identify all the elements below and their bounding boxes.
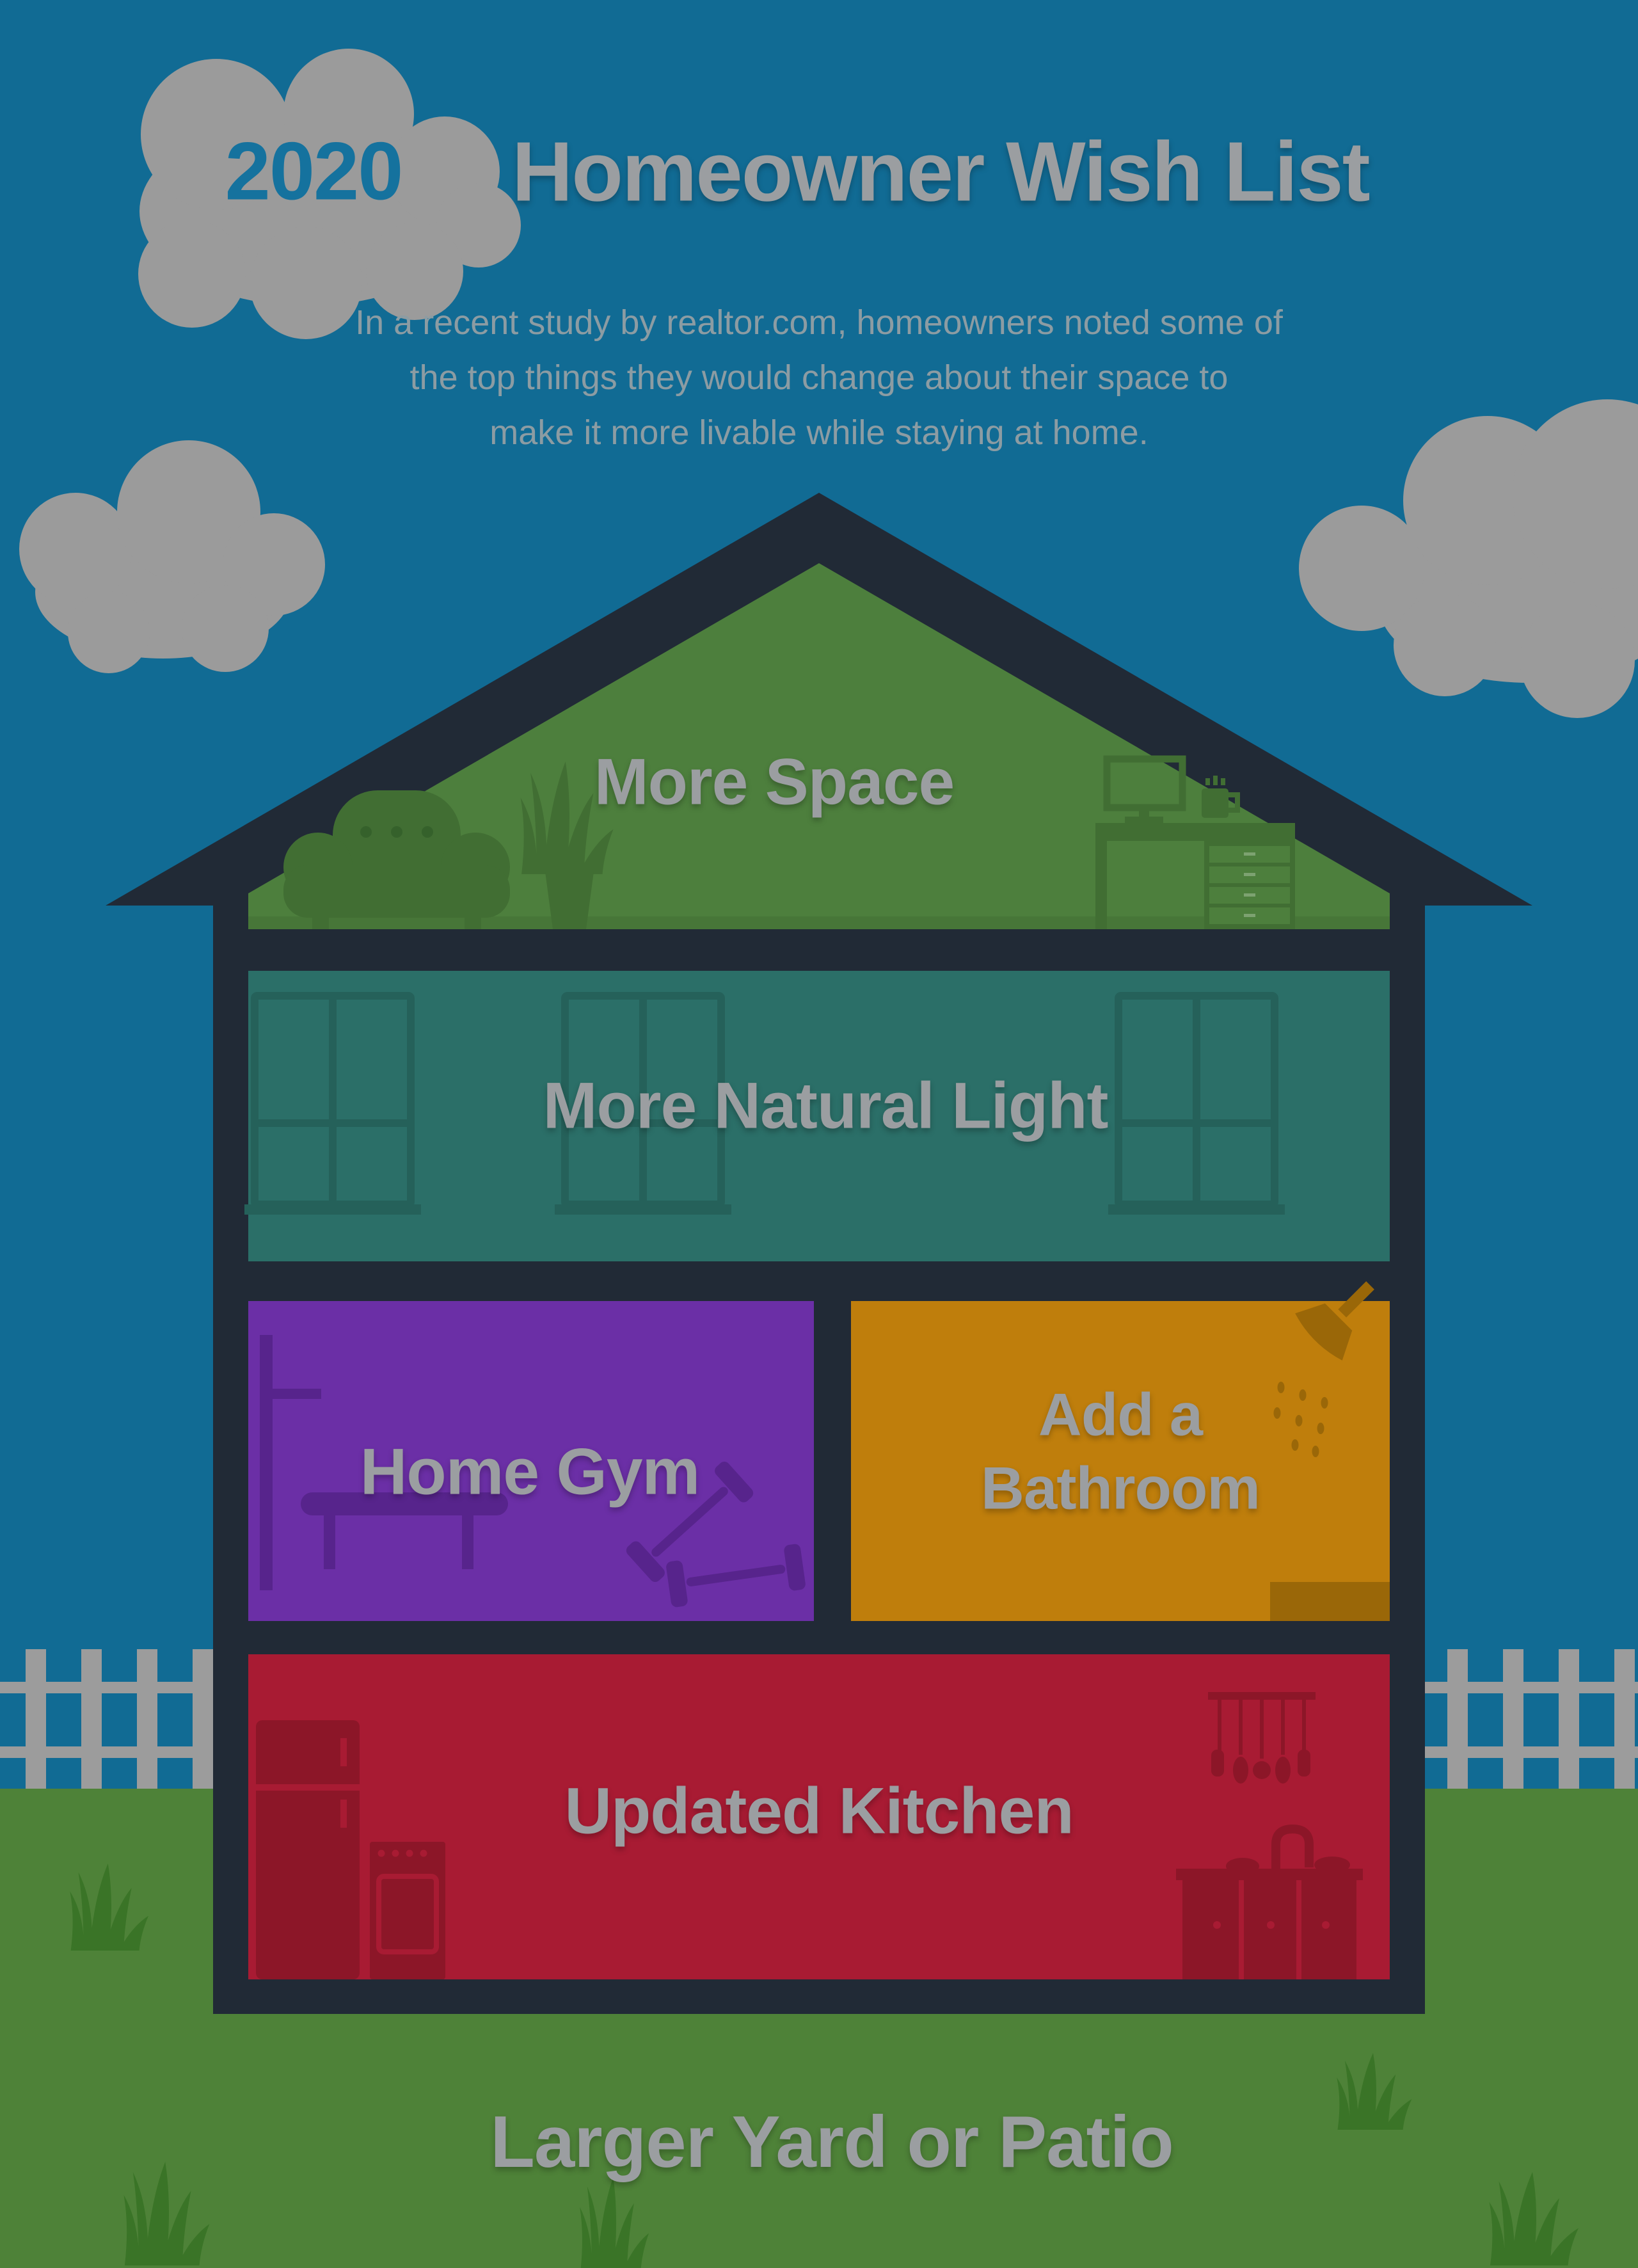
subtitle-line: make it more livable while staying at ho… xyxy=(355,405,1283,460)
fridge-icon xyxy=(256,1720,360,1979)
fence-right xyxy=(1425,1649,1638,1789)
subtitle-line: In a recent study by realtor.com, homeow… xyxy=(355,295,1283,350)
label-more-natural-light: More Natural Light xyxy=(543,1071,1108,1140)
subtitle: In a recent study by realtor.com, homeow… xyxy=(355,295,1283,460)
left-cloud-icon xyxy=(19,440,325,673)
label-add-a-bathroom-line2: Bathroom xyxy=(981,1451,1260,1525)
infographic-root: 2020 Homeowner Wish List In a recent stu… xyxy=(0,0,1638,2268)
subtitle-line: the top things they would change about t… xyxy=(355,350,1283,405)
label-updated-kitchen: Updated Kitchen xyxy=(564,1777,1073,1845)
stove-icon xyxy=(370,1842,445,1979)
page-title: Homeowner Wish List xyxy=(512,124,1369,220)
label-home-gym: Home Gym xyxy=(360,1437,700,1506)
year-badge: 2020 xyxy=(225,125,402,219)
bathtub-icon xyxy=(1270,1582,1390,1621)
label-larger-yard-or-patio: Larger Yard or Patio xyxy=(490,2104,1173,2181)
label-more-space: More Space xyxy=(594,747,955,816)
label-add-a-bathroom-line1: Add a xyxy=(981,1378,1260,1451)
label-add-a-bathroom: Add a Bathroom xyxy=(981,1378,1260,1524)
fence-left xyxy=(0,1649,213,1789)
right-cloud-icon xyxy=(1299,399,1638,718)
